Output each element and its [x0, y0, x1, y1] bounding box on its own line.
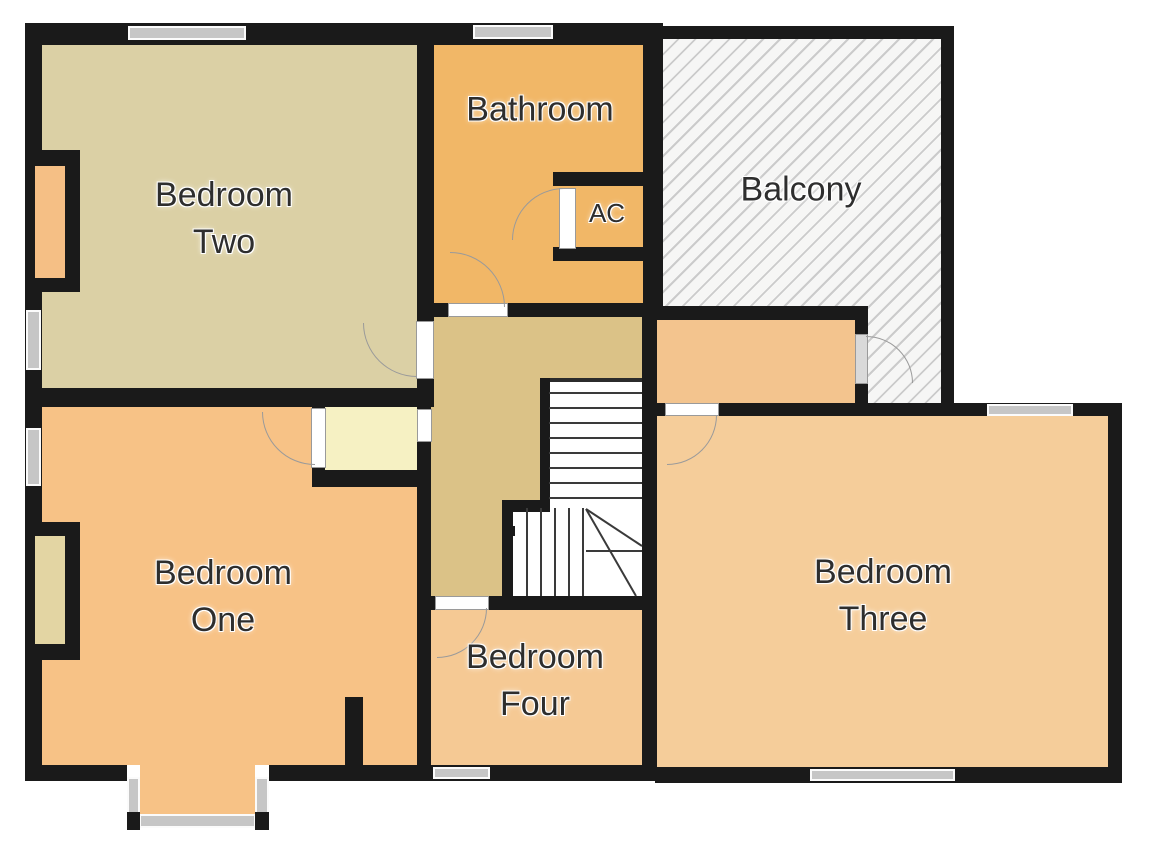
- wall-corridor-top: [643, 306, 863, 320]
- bay-right-window: [255, 777, 269, 816]
- balcony-label: Balcony: [741, 167, 862, 214]
- bay-casing-right: [255, 765, 269, 777]
- bay-corner-left: [127, 812, 140, 830]
- stair-winder-box: [513, 508, 642, 596]
- bedroom-four-label: Bedroom Four: [466, 634, 604, 728]
- bedroom-one-label: Bedroom One: [154, 550, 292, 644]
- bedroom-three-bottom-window: [810, 769, 955, 781]
- wall-outer-top: [25, 23, 663, 45]
- wall-ac-top: [553, 172, 663, 186]
- bay-casing-left: [127, 765, 140, 777]
- wall-balcony-top: [655, 26, 953, 39]
- bedroom-two-label: Bedroom Two: [155, 172, 293, 266]
- bay-corner-right: [255, 812, 269, 830]
- bathroom-top-window: [473, 25, 553, 39]
- bedroom-two-door: [416, 321, 434, 379]
- wall-closet-bottom: [312, 470, 417, 487]
- wall-ac-bottom: [553, 247, 663, 261]
- floor-plan: Bedroom Two Bathroom AC Balcony Bedroom …: [0, 0, 1156, 850]
- wall-hall-right: [642, 303, 657, 781]
- wall-bedroom-three-right: [1108, 403, 1122, 783]
- wall-balcony-right: [941, 26, 954, 416]
- wall-bedroom-two-bottom: [25, 388, 433, 407]
- ac-closet-label: AC: [589, 200, 625, 226]
- wall-bedroom-one-right: [417, 407, 431, 767]
- bay-left-window: [127, 777, 140, 816]
- stair-newel-post: [505, 526, 515, 536]
- bedroom-three-label: Bedroom Three: [814, 549, 952, 643]
- bay-floor: [139, 765, 256, 818]
- bedroom-four-bottom-window: [433, 767, 490, 779]
- bedroom-two-left-window: [26, 310, 41, 370]
- closet-lobby-floor: [325, 407, 417, 470]
- bedroom-two-top-window: [128, 26, 246, 40]
- stair-upper-run: [549, 378, 642, 508]
- wall-balcony-door-stub-bottom: [855, 382, 868, 404]
- stair-wall-top-stub: [502, 500, 550, 512]
- bedroom-one-lobby-opening: [417, 409, 432, 442]
- stair-wall-upper-left: [540, 378, 550, 508]
- recess-bedroom-two-fill: [35, 166, 65, 278]
- bedroom-one-left-window: [26, 428, 41, 486]
- bathroom-label: Bathroom: [466, 87, 613, 134]
- wall-balcony-door-stub-top: [855, 306, 868, 336]
- wall-chimney-stub: [345, 697, 363, 767]
- stair-wall-lower-left: [502, 508, 513, 600]
- corridor-floor: [657, 320, 857, 403]
- recess-bedroom-one-fill: [35, 536, 65, 644]
- bedroom-three-top-window: [987, 404, 1073, 416]
- bay-bottom-window: [139, 814, 256, 828]
- wall-outer-bottom-left: [25, 765, 657, 781]
